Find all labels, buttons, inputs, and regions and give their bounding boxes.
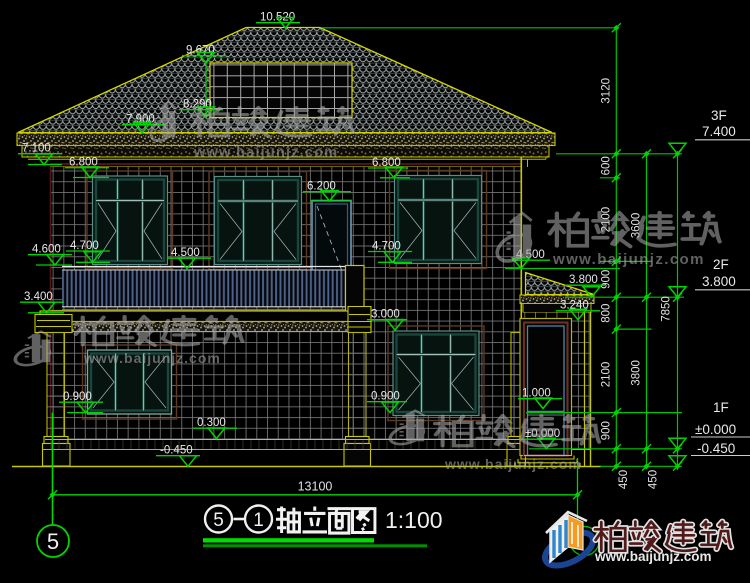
- svg-text:4.700: 4.700: [372, 240, 401, 252]
- svg-text:4.600: 4.600: [32, 244, 61, 256]
- svg-text:3120: 3120: [601, 78, 613, 104]
- svg-text:3.400: 3.400: [24, 291, 53, 303]
- svg-text:3.800: 3.800: [569, 274, 598, 286]
- svg-text:±0.000: ±0.000: [695, 422, 736, 437]
- svg-text:450: 450: [618, 470, 630, 489]
- svg-text:7850: 7850: [661, 296, 673, 322]
- svg-text:3F: 3F: [711, 108, 727, 123]
- svg-text:www.baijunjz.com: www.baijunjz.com: [83, 350, 221, 366]
- svg-text:1F: 1F: [713, 400, 729, 415]
- svg-text:3.000: 3.000: [371, 309, 400, 321]
- svg-text:9.670: 9.670: [186, 45, 215, 57]
- svg-text:2100: 2100: [601, 362, 613, 388]
- svg-text:5: 5: [213, 510, 224, 531]
- svg-text:-0.450: -0.450: [697, 441, 735, 456]
- svg-text:1:100: 1:100: [385, 507, 443, 533]
- svg-text:www.baijunjz.com: www.baijunjz.com: [193, 145, 338, 161]
- svg-text:600: 600: [601, 156, 613, 175]
- svg-text:0.900: 0.900: [63, 391, 92, 403]
- svg-text:www.baijunjz.com: www.baijunjz.com: [444, 456, 582, 472]
- svg-text:4.500: 4.500: [171, 247, 200, 259]
- svg-text:900: 900: [601, 270, 613, 289]
- svg-text:900: 900: [601, 421, 613, 440]
- svg-text:5: 5: [47, 529, 59, 554]
- svg-text:3800: 3800: [631, 360, 643, 386]
- svg-text:0.900: 0.900: [371, 391, 400, 403]
- svg-text:3.800: 3.800: [702, 274, 736, 289]
- svg-text:7.400: 7.400: [702, 124, 736, 139]
- svg-text:450: 450: [648, 470, 660, 489]
- svg-text:7.100: 7.100: [22, 143, 51, 155]
- svg-text:-0.450: -0.450: [160, 445, 193, 457]
- svg-text:www.baijunjz.com: www.baijunjz.com: [552, 251, 705, 268]
- svg-text:2F: 2F: [713, 257, 729, 272]
- svg-text:4.700: 4.700: [70, 240, 99, 252]
- svg-text:8.290: 8.290: [183, 99, 212, 111]
- svg-text:0.300: 0.300: [197, 417, 226, 429]
- svg-text:www.baijunjz.com: www.baijunjz.com: [594, 549, 712, 564]
- svg-text:800: 800: [601, 304, 613, 323]
- svg-text:13100: 13100: [298, 480, 333, 494]
- svg-text:1: 1: [253, 510, 264, 531]
